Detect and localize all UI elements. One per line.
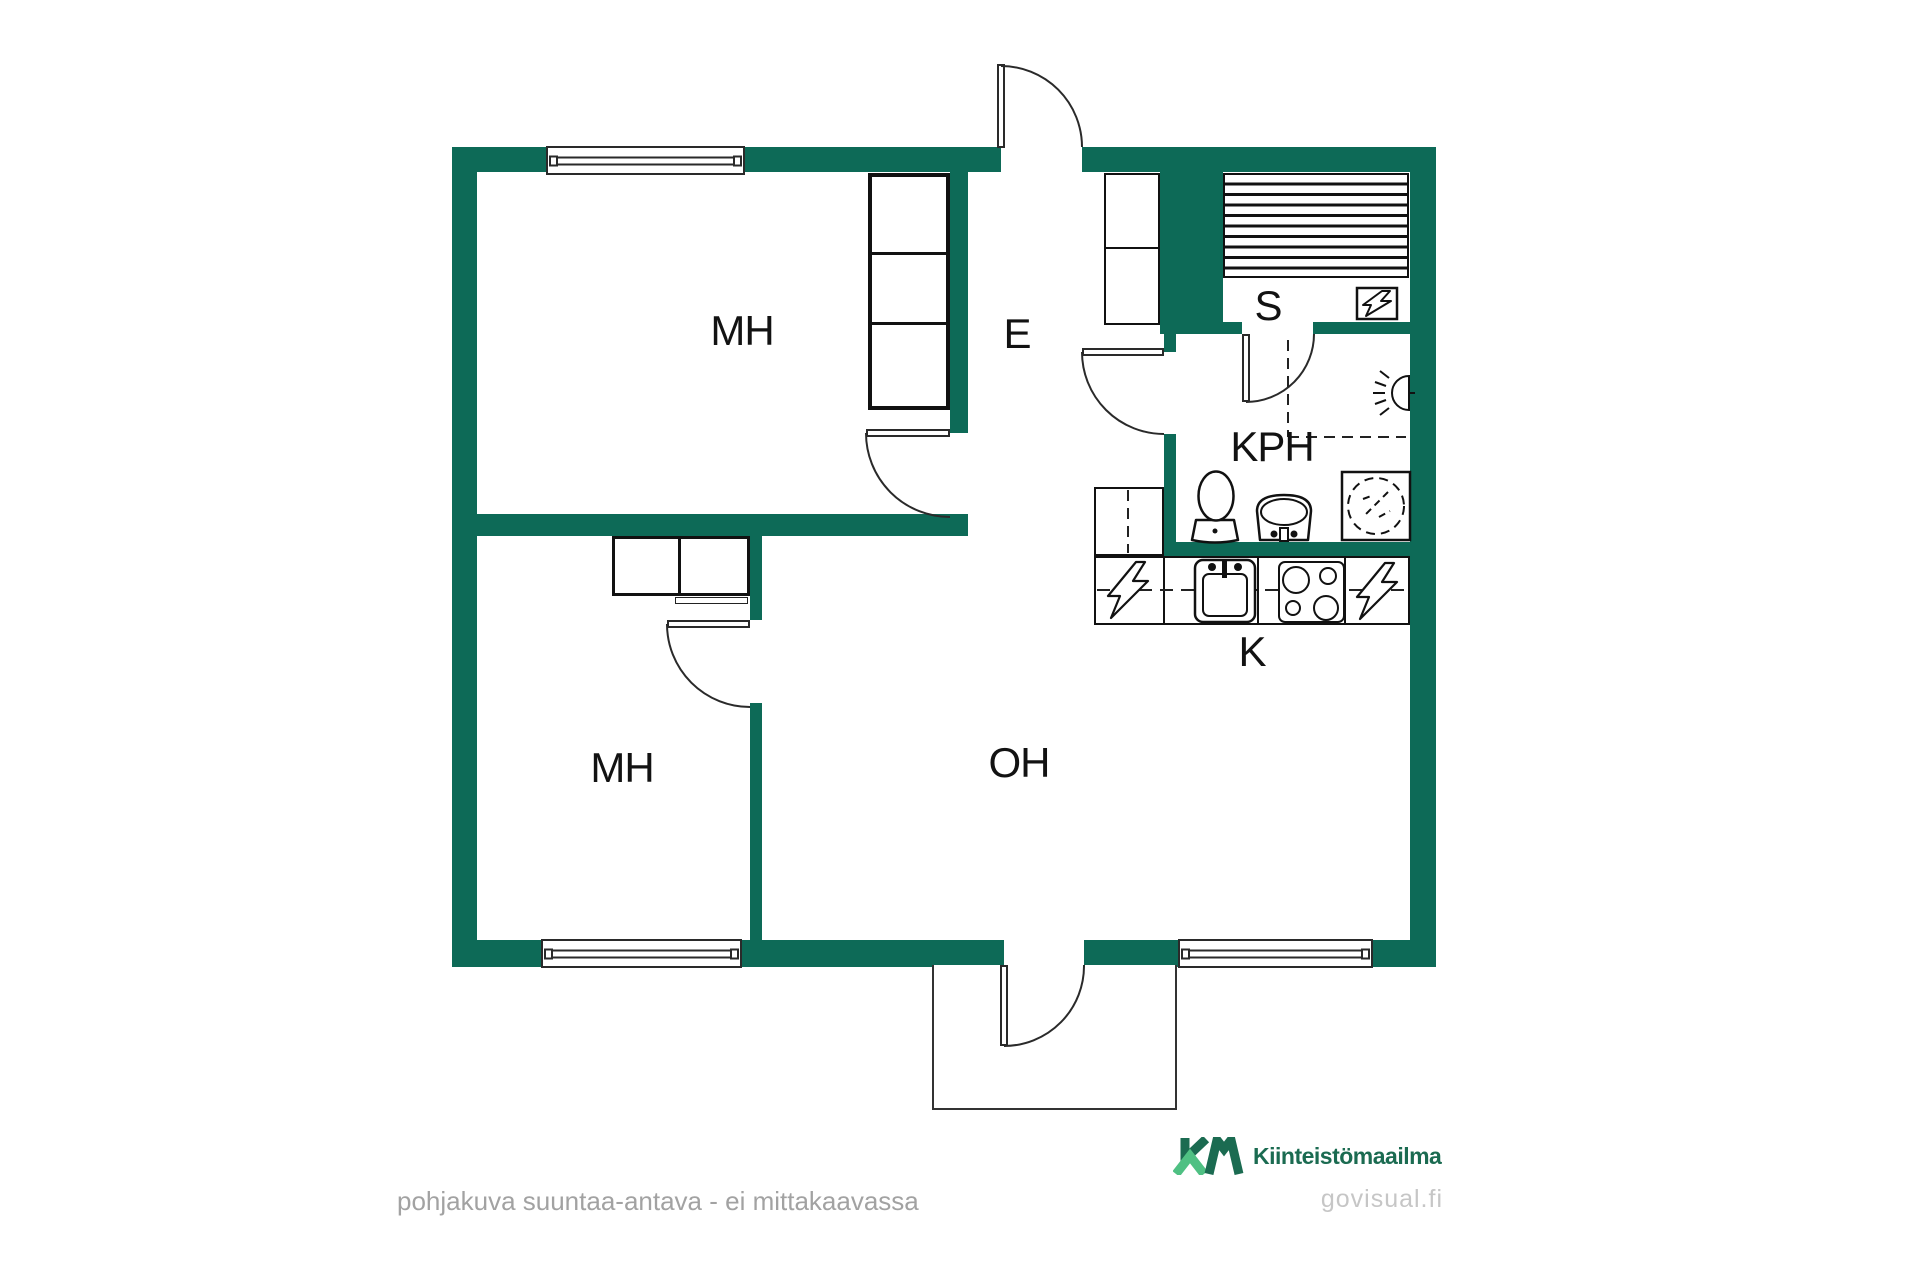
washing-machine-icon bbox=[1342, 472, 1410, 540]
room-label-bathroom: KPH bbox=[1230, 423, 1313, 471]
closet-rail bbox=[675, 597, 748, 604]
balcony-door-leaf bbox=[1000, 965, 1008, 1046]
room-label-kitchen: K bbox=[1238, 628, 1265, 676]
wall-sauna-bathroom-a bbox=[1160, 322, 1242, 334]
counter-section-line bbox=[1344, 558, 1346, 623]
wardrobe-shelf-line bbox=[872, 252, 946, 255]
brand-logo: Kiinteistömaailma bbox=[1173, 1137, 1441, 1175]
brand-name: Kiinteistömaailma bbox=[1253, 1143, 1441, 1170]
window-bedroom2 bbox=[541, 939, 742, 968]
sauna-bench-icon bbox=[1223, 173, 1409, 278]
room-label-living-room: OH bbox=[989, 739, 1050, 787]
counter-section-line bbox=[1257, 558, 1259, 623]
balcony-outline bbox=[932, 965, 1177, 1110]
floor-plan: MH E S KPH K MH OH pohjakuva suuntaa-ant… bbox=[0, 0, 1920, 1280]
wall-sauna-left bbox=[1160, 172, 1223, 322]
window-frame-tick bbox=[730, 948, 739, 959]
window-frame-tick bbox=[1181, 948, 1190, 959]
window-frame-tick bbox=[1361, 948, 1370, 959]
window-living-room bbox=[1178, 939, 1373, 968]
wall-hall-bedroom1-upper bbox=[950, 172, 968, 433]
wall-left bbox=[452, 147, 477, 967]
closet-divider-line bbox=[678, 539, 681, 593]
kitchen-counter bbox=[1094, 556, 1410, 625]
watermark-text: govisual.fi bbox=[1321, 1185, 1443, 1214]
electric-sauna-heater-icon bbox=[1357, 288, 1397, 319]
sauna-door-leaf bbox=[1242, 334, 1250, 402]
toilet-icon bbox=[1192, 472, 1238, 543]
window-glass bbox=[1185, 949, 1366, 958]
wall-bedroom2-living-lower bbox=[750, 703, 762, 940]
room-label-bedroom-1: MH bbox=[710, 307, 773, 355]
window-glass bbox=[553, 156, 738, 165]
wall-sauna-bathroom-b bbox=[1313, 322, 1410, 334]
counter-section-line bbox=[1163, 558, 1165, 623]
closet-shelf-line bbox=[1106, 247, 1158, 249]
wall-bedroom2-living-upper bbox=[750, 536, 762, 620]
wardrobe-shelf-line bbox=[872, 322, 946, 325]
entry-door-opening bbox=[1001, 145, 1082, 174]
room-label-sauna: S bbox=[1254, 282, 1281, 330]
window-frame-tick bbox=[549, 155, 558, 166]
bedroom1-door-leaf bbox=[866, 429, 950, 437]
washbasin-icon bbox=[1257, 495, 1311, 541]
wall-bathroom-left-lower bbox=[1164, 434, 1176, 542]
kitchen-tall-cabinet bbox=[1094, 487, 1164, 556]
bedroom2-closet-icon bbox=[612, 536, 750, 596]
window-bedroom1 bbox=[546, 146, 745, 175]
disclaimer-text: pohjakuva suuntaa-antava - ei mittakaava… bbox=[397, 1186, 919, 1217]
wall-light-icon bbox=[1373, 371, 1415, 415]
bathroom-door-leaf bbox=[1082, 348, 1164, 356]
window-frame-tick bbox=[544, 948, 553, 959]
entry-door-leaf bbox=[997, 64, 1005, 148]
wall-bathroom-kitchen bbox=[1164, 542, 1410, 556]
wall-bathroom-left-upper bbox=[1164, 334, 1176, 352]
room-label-bedroom-2: MH bbox=[590, 744, 653, 792]
wall-bedroom-divider bbox=[477, 514, 968, 536]
room-label-entry-hall: E bbox=[1003, 310, 1030, 358]
hall-closet-icon bbox=[1104, 173, 1160, 325]
km-logo-icon bbox=[1173, 1137, 1247, 1175]
wall-right bbox=[1410, 147, 1436, 967]
balcony-door-opening bbox=[1004, 938, 1084, 969]
window-glass bbox=[548, 949, 735, 958]
window-frame-tick bbox=[733, 155, 742, 166]
bedroom2-door-leaf bbox=[667, 620, 750, 628]
wardrobe-icon bbox=[868, 173, 950, 410]
wall-hall-bedroom1-stub bbox=[950, 517, 968, 536]
